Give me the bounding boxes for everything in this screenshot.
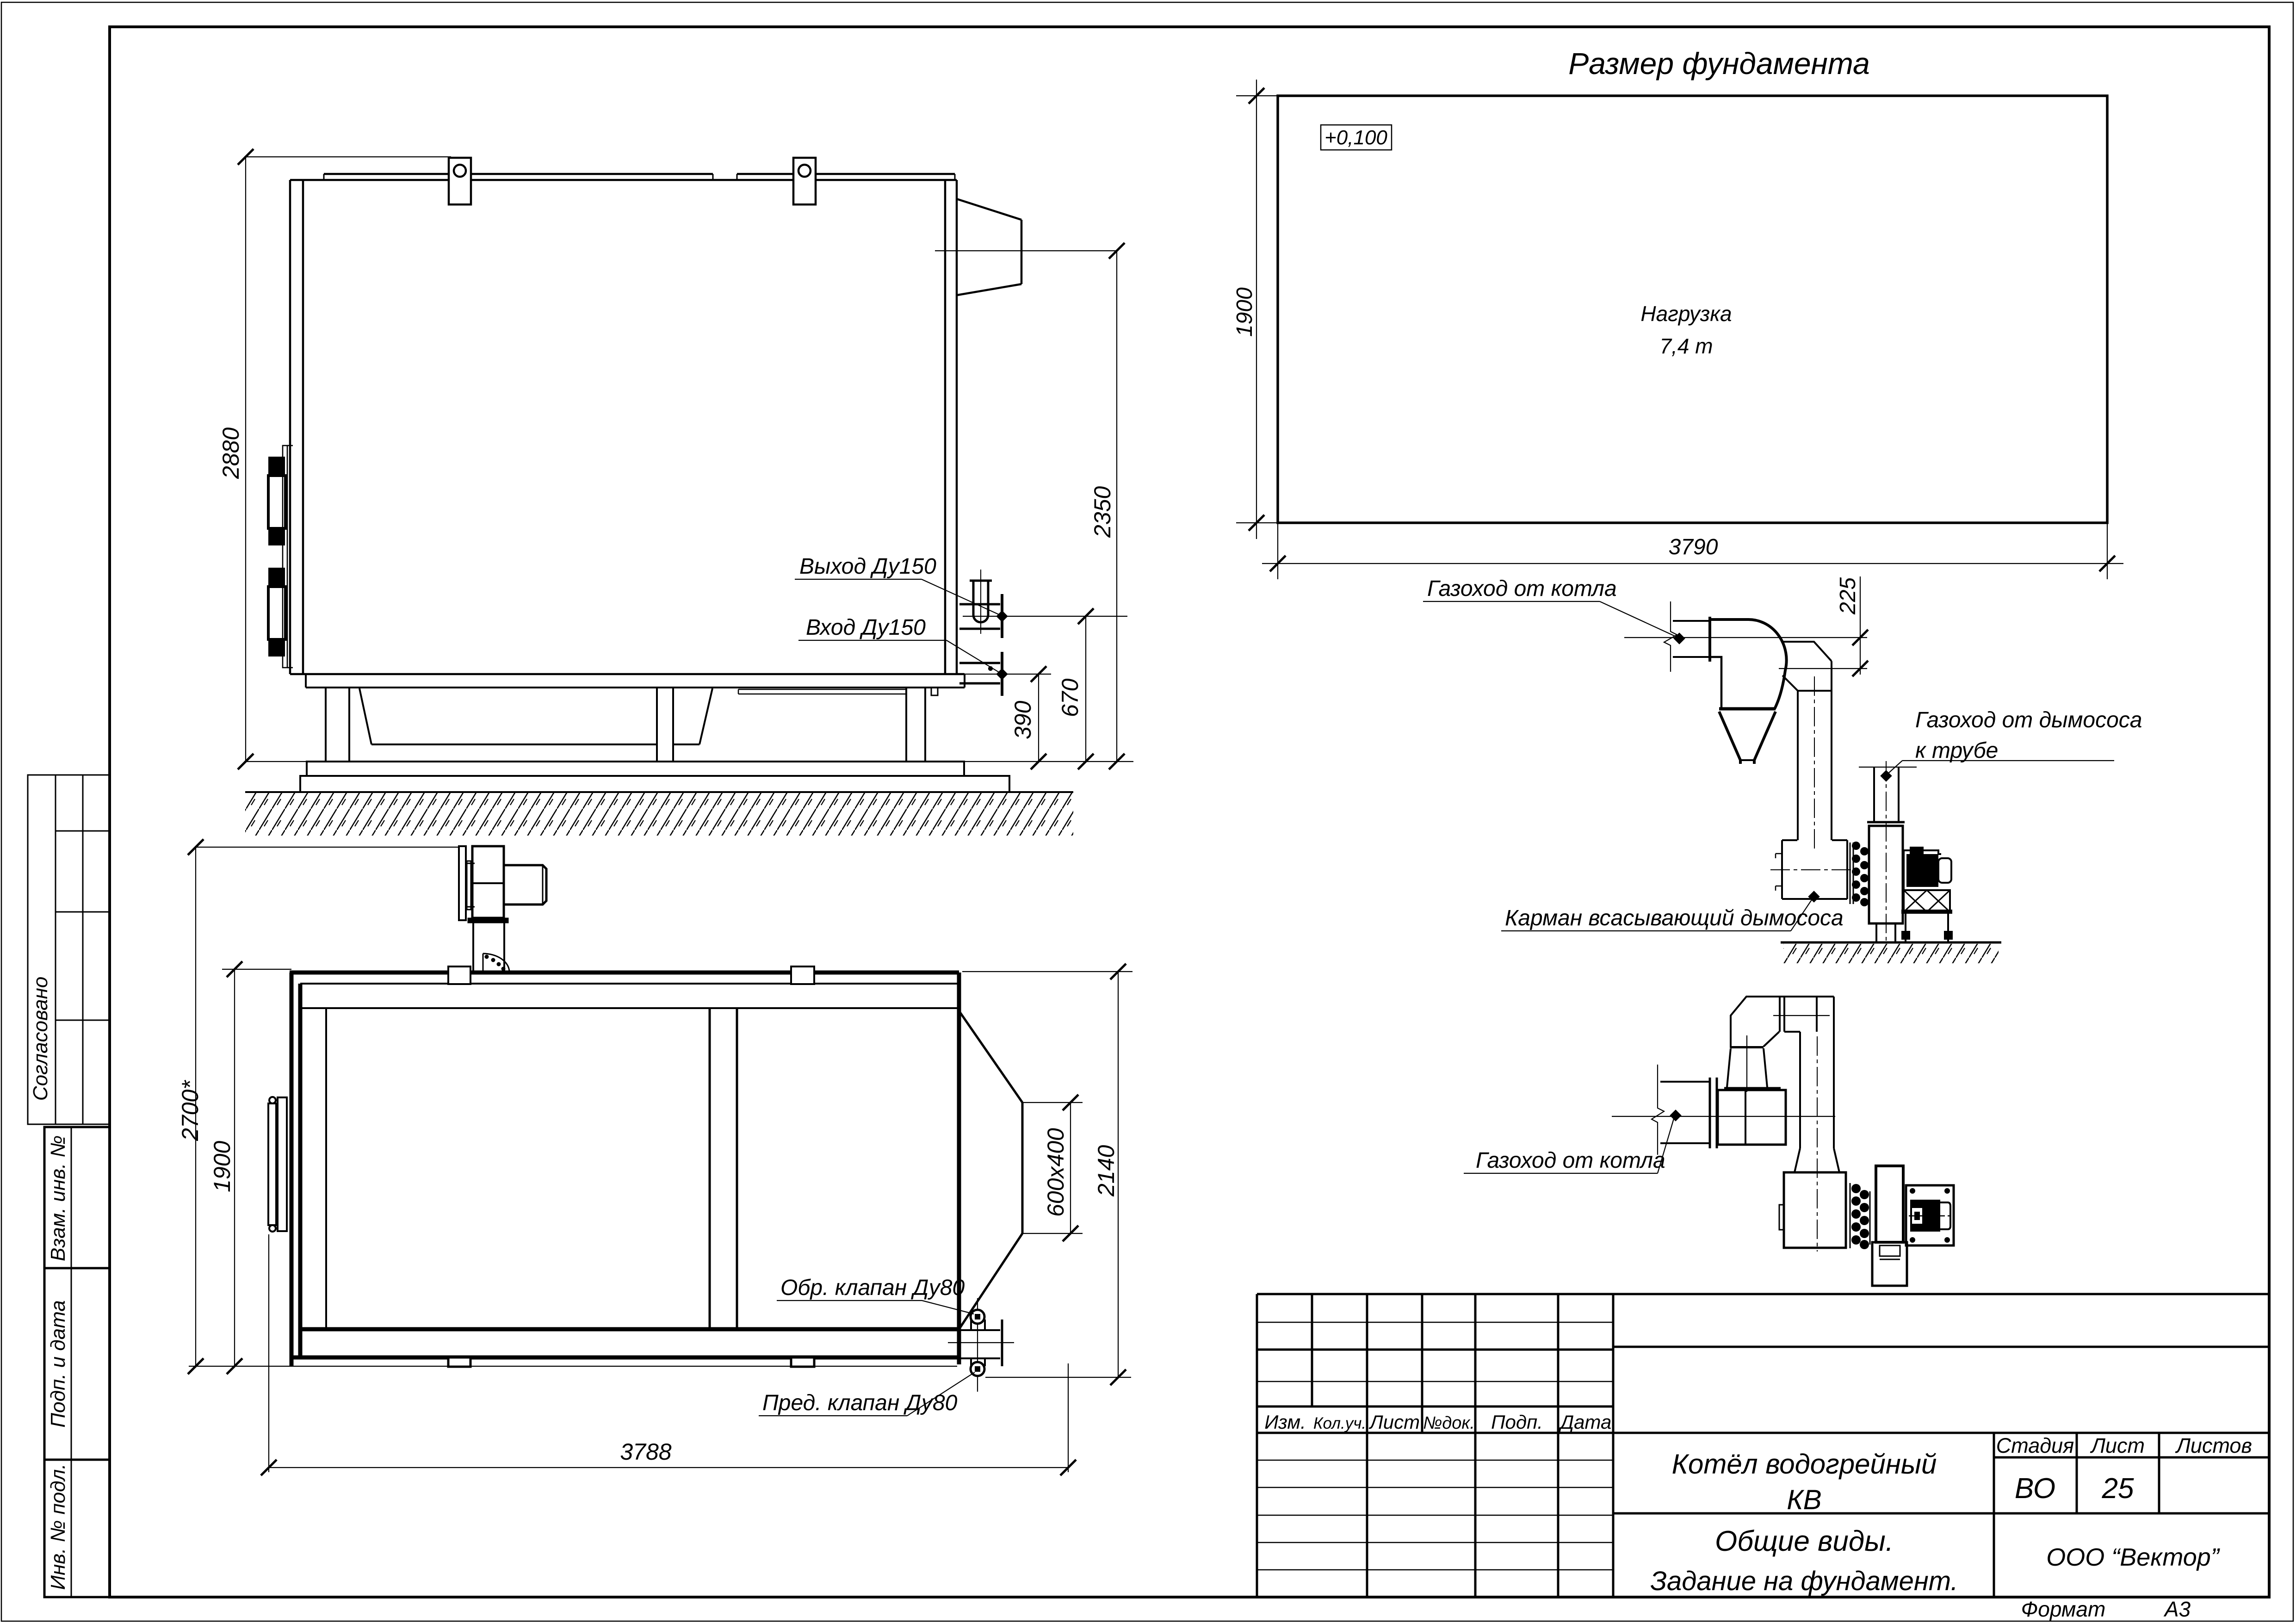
svg-text:600х400: 600х400 bbox=[1043, 1128, 1069, 1217]
svg-text:1900: 1900 bbox=[1232, 287, 1257, 337]
svg-text:ООО “Вектор”: ООО “Вектор” bbox=[2046, 1543, 2220, 1571]
svg-text:Инв. № подл.: Инв. № подл. bbox=[47, 1463, 69, 1590]
svg-text:670: 670 bbox=[1057, 678, 1083, 717]
svg-text:Подп. и дата: Подп. и дата bbox=[47, 1300, 69, 1427]
svg-text:225: 225 bbox=[1836, 577, 1860, 615]
svg-text:2350: 2350 bbox=[1089, 486, 1115, 538]
svg-text:Вход Ду150: Вход Ду150 bbox=[806, 615, 926, 640]
svg-text:Кол.уч.: Кол.уч. bbox=[1313, 1414, 1366, 1432]
svg-text:7,4 т: 7,4 т bbox=[1659, 334, 1713, 358]
svg-text:Листов: Листов bbox=[2175, 1434, 2252, 1457]
svg-text:Подп.: Подп. bbox=[1491, 1411, 1543, 1433]
svg-text:к трубе: к трубе bbox=[1915, 738, 1998, 763]
svg-text:2880: 2880 bbox=[218, 427, 244, 479]
svg-text:Лист: Лист bbox=[1368, 1411, 1420, 1433]
svg-text:Размер фундамента: Размер фундамента bbox=[1568, 46, 1870, 81]
svg-text:Пред. клапан Ду80: Пред. клапан Ду80 bbox=[762, 1391, 958, 1415]
svg-text:25: 25 bbox=[2102, 1473, 2134, 1505]
svg-text:Лист: Лист bbox=[2090, 1434, 2145, 1457]
svg-text:Выход Ду150: Выход Ду150 bbox=[799, 554, 936, 579]
svg-text:А3: А3 bbox=[2163, 1597, 2191, 1621]
svg-text:2700*: 2700* bbox=[177, 1080, 203, 1141]
svg-text:Взам. инв. №: Взам. инв. № bbox=[47, 1135, 69, 1261]
svg-text:3788: 3788 bbox=[620, 1439, 671, 1465]
svg-text:1900: 1900 bbox=[209, 1141, 235, 1192]
svg-text:390: 390 bbox=[1010, 700, 1036, 739]
svg-text:КВ: КВ bbox=[1787, 1484, 1821, 1515]
svg-text:Газоход от котла: Газоход от котла bbox=[1427, 576, 1617, 601]
svg-text:+0,100: +0,100 bbox=[1324, 126, 1387, 149]
svg-text:Согласовано: Согласовано bbox=[29, 977, 52, 1101]
svg-text:Изм.: Изм. bbox=[1264, 1411, 1306, 1433]
svg-text:Обр. клапан Ду80: Обр. клапан Ду80 bbox=[780, 1276, 965, 1300]
svg-text:Карман всасывающий дымососа: Карман всасывающий дымососа bbox=[1505, 906, 1844, 930]
svg-text:2140: 2140 bbox=[1093, 1145, 1119, 1197]
svg-text:Формат: Формат bbox=[2021, 1597, 2106, 1621]
svg-text:Общие виды.: Общие виды. bbox=[1715, 1525, 1894, 1557]
svg-text:№док.: №док. bbox=[1423, 1413, 1475, 1433]
svg-text:Газоход от дымососа: Газоход от дымососа bbox=[1915, 708, 2142, 732]
svg-text:Задание на фундамент.: Задание на фундамент. bbox=[1650, 1566, 1958, 1596]
svg-text:Стадия: Стадия bbox=[1996, 1434, 2074, 1457]
svg-text:3790: 3790 bbox=[1669, 535, 1718, 559]
svg-text:Газоход от котла: Газоход от котла bbox=[1476, 1148, 1665, 1173]
svg-text:Котёл водогрейный: Котёл водогрейный bbox=[1672, 1449, 1937, 1480]
svg-text:Дата: Дата bbox=[1559, 1411, 1612, 1433]
svg-text:Нагрузка: Нагрузка bbox=[1640, 302, 1732, 326]
svg-text:ВО: ВО bbox=[2015, 1473, 2055, 1505]
